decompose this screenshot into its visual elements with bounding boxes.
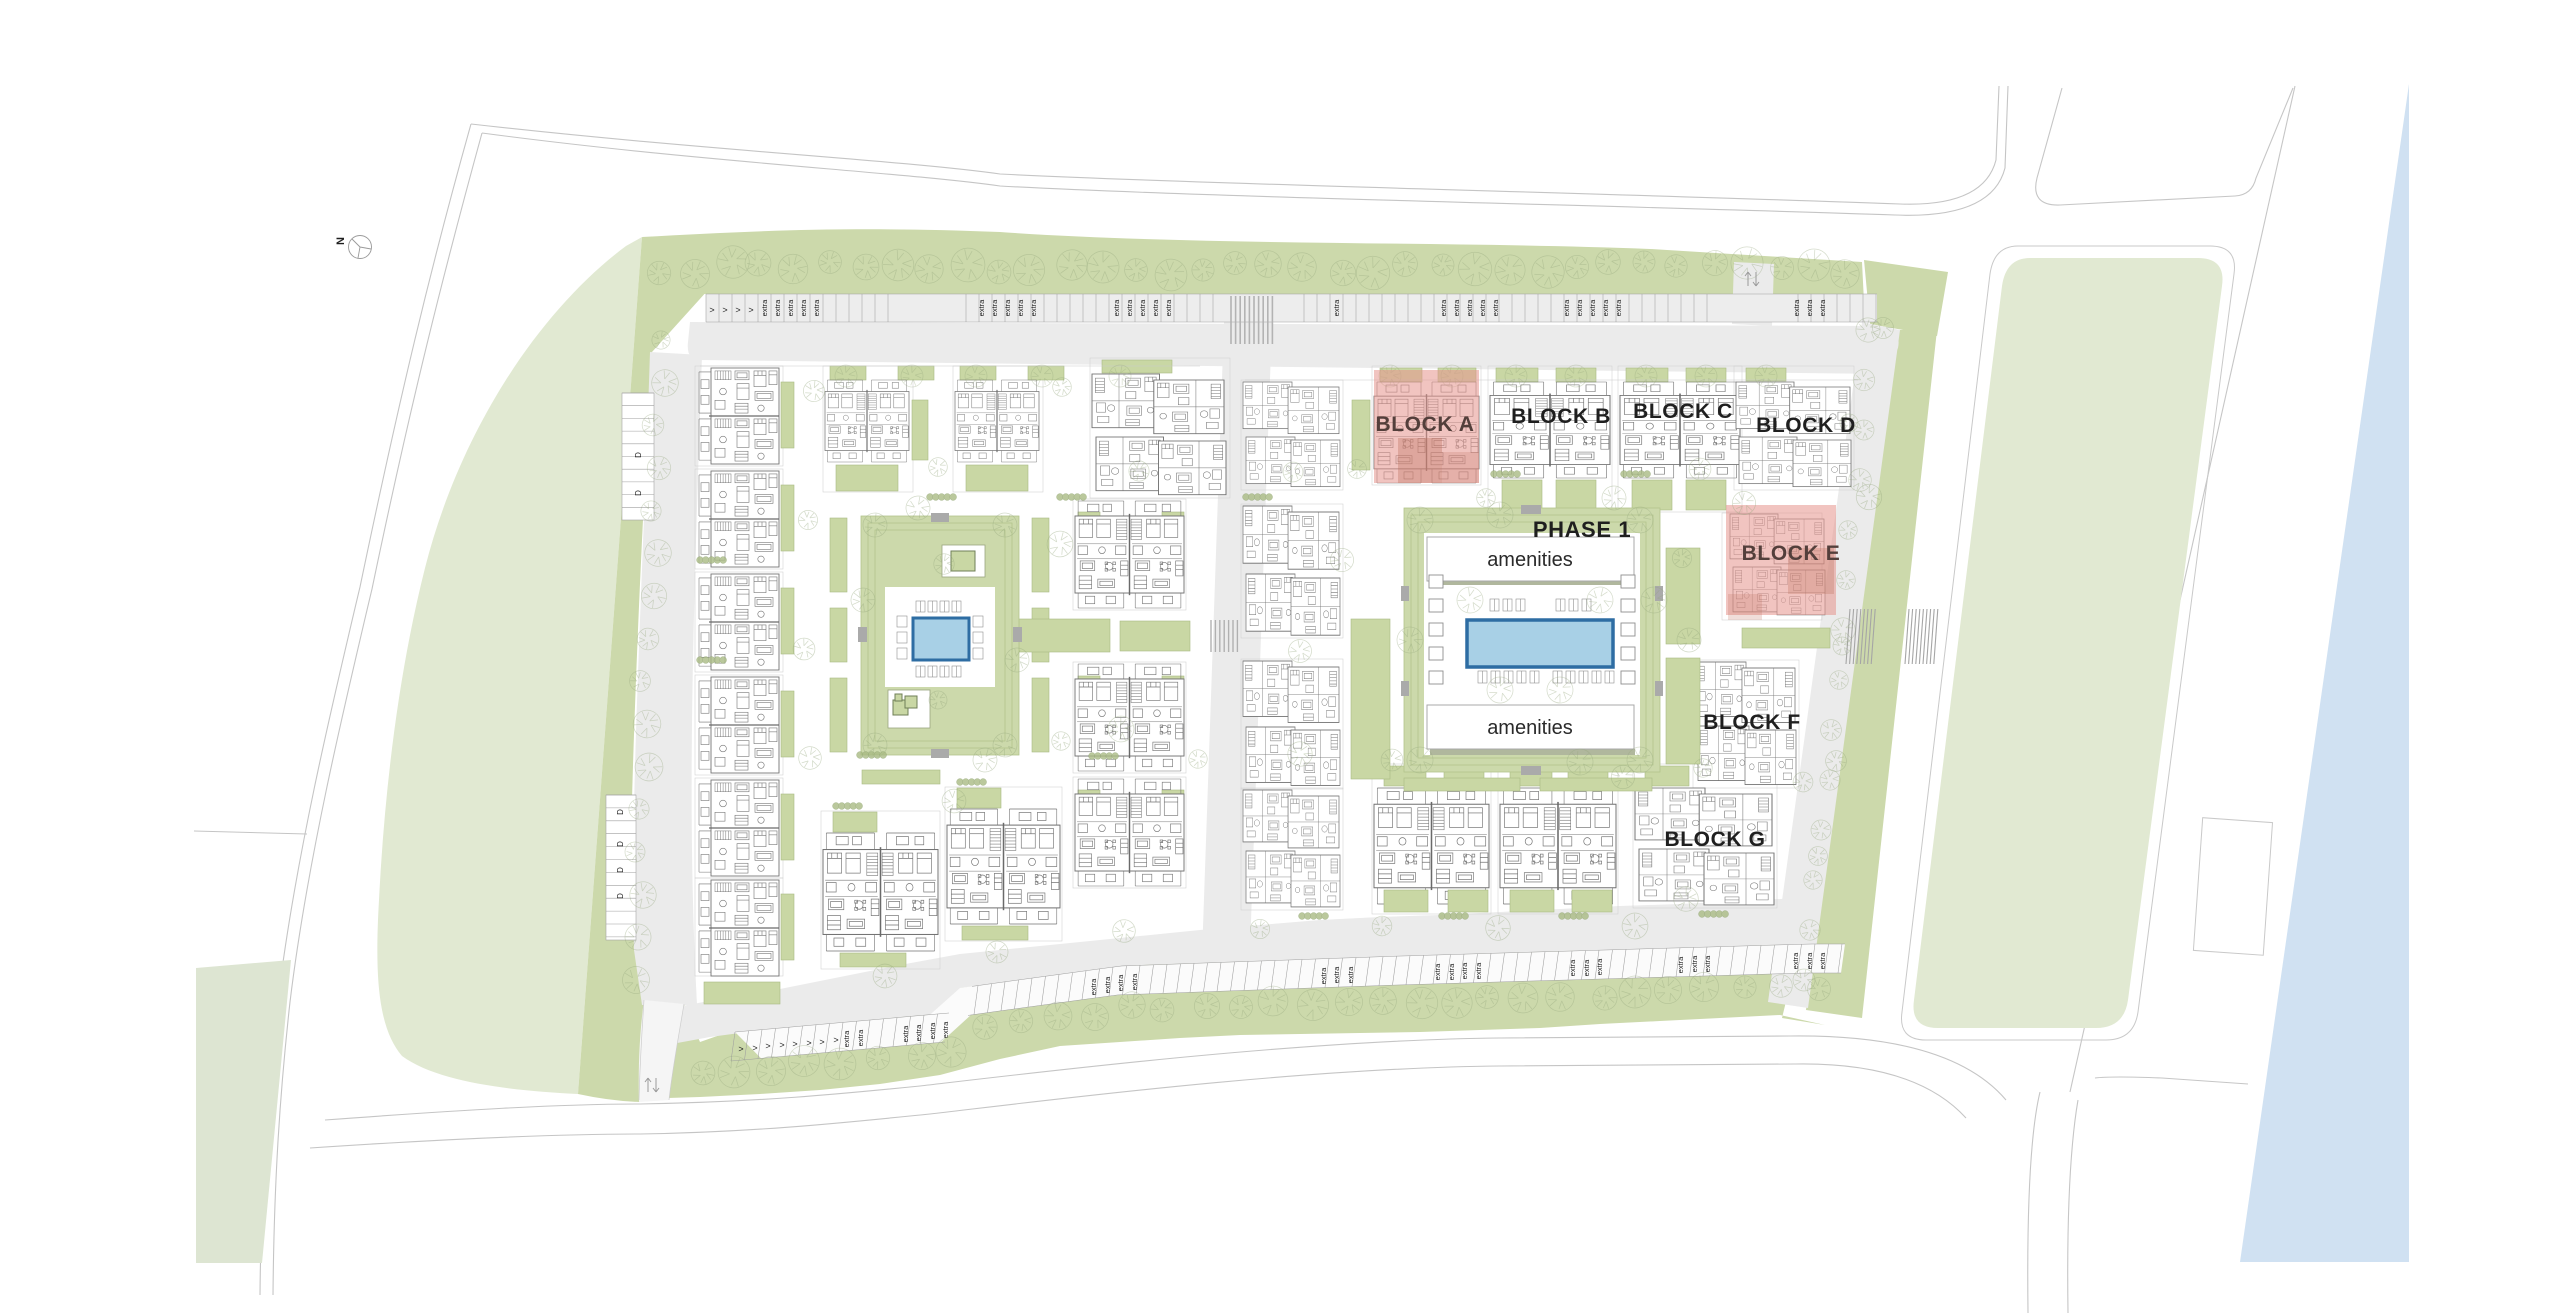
svg-text:extra: extra bbox=[1447, 963, 1456, 981]
svg-text:extra: extra bbox=[990, 299, 999, 317]
svg-text:>: > bbox=[779, 1040, 784, 1050]
svg-text:D: D bbox=[616, 867, 625, 873]
svg-text:extra: extra bbox=[977, 299, 986, 317]
svg-text:D: D bbox=[634, 452, 643, 458]
svg-text:BLOCK B: BLOCK B bbox=[1511, 405, 1611, 428]
svg-text:extra: extra bbox=[799, 299, 808, 317]
svg-text:extra: extra bbox=[1125, 299, 1134, 317]
svg-text:BLOCK G: BLOCK G bbox=[1664, 828, 1765, 851]
svg-text:>: > bbox=[765, 1041, 770, 1051]
svg-text:extra: extra bbox=[1452, 299, 1461, 317]
svg-text:extra: extra bbox=[941, 1021, 950, 1039]
svg-text:extra: extra bbox=[1332, 966, 1341, 984]
svg-text:extra: extra bbox=[1614, 299, 1623, 317]
svg-text:extra: extra bbox=[1805, 952, 1814, 970]
svg-text:D: D bbox=[634, 490, 643, 496]
svg-text:extra: extra bbox=[1791, 952, 1800, 970]
svg-text:extra: extra bbox=[812, 299, 821, 317]
svg-text:D: D bbox=[616, 809, 625, 815]
svg-text:extra: extra bbox=[1818, 299, 1827, 317]
svg-text:extra: extra bbox=[1112, 299, 1121, 317]
svg-text:extra: extra bbox=[1595, 958, 1604, 976]
svg-text:extra: extra bbox=[786, 299, 795, 317]
svg-text:extra: extra bbox=[1562, 299, 1571, 317]
svg-text:>: > bbox=[833, 1035, 838, 1045]
svg-text:>: > bbox=[748, 305, 753, 315]
svg-text:extra: extra bbox=[1588, 299, 1597, 317]
svg-text:extra: extra bbox=[1703, 955, 1712, 973]
svg-text:extra: extra bbox=[856, 1029, 865, 1047]
svg-text:BLOCK C: BLOCK C bbox=[1633, 400, 1733, 423]
svg-text:extra: extra bbox=[1676, 956, 1685, 974]
svg-text:amenities: amenities bbox=[1487, 717, 1573, 739]
svg-text:extra: extra bbox=[1433, 963, 1442, 981]
svg-text:BLOCK D: BLOCK D bbox=[1756, 414, 1856, 437]
svg-text:D: D bbox=[616, 893, 625, 899]
svg-text:extra: extra bbox=[1332, 299, 1341, 317]
svg-text:extra: extra bbox=[1690, 955, 1699, 973]
svg-text:extra: extra bbox=[1474, 962, 1483, 980]
svg-text:extra: extra bbox=[1346, 966, 1355, 984]
svg-text:extra: extra bbox=[842, 1030, 851, 1048]
svg-text:extra: extra bbox=[1805, 299, 1814, 317]
svg-text:>: > bbox=[735, 305, 740, 315]
svg-text:extra: extra bbox=[1582, 959, 1591, 977]
svg-text:extra: extra bbox=[1792, 299, 1801, 317]
svg-text:extra: extra bbox=[1460, 962, 1469, 980]
svg-text:N: N bbox=[335, 237, 347, 245]
svg-text:extra: extra bbox=[1491, 299, 1500, 317]
svg-text:BLOCK E: BLOCK E bbox=[1742, 542, 1841, 565]
svg-text:extra: extra bbox=[1003, 299, 1012, 317]
svg-text:extra: extra bbox=[901, 1025, 910, 1043]
svg-text:D: D bbox=[616, 841, 625, 847]
svg-text:extra: extra bbox=[1116, 974, 1125, 992]
svg-text:>: > bbox=[722, 305, 727, 315]
svg-text:extra: extra bbox=[1465, 299, 1474, 317]
svg-text:extra: extra bbox=[1089, 978, 1098, 996]
svg-text:extra: extra bbox=[1164, 299, 1173, 317]
svg-text:extra: extra bbox=[1319, 967, 1328, 985]
svg-text:extra: extra bbox=[1601, 299, 1610, 317]
svg-text:amenities: amenities bbox=[1487, 549, 1573, 571]
svg-text:extra: extra bbox=[1818, 952, 1827, 970]
svg-text:BLOCK A: BLOCK A bbox=[1375, 413, 1474, 436]
svg-text:extra: extra bbox=[1439, 299, 1448, 317]
svg-text:extra: extra bbox=[1016, 299, 1025, 317]
svg-text:extra: extra bbox=[1029, 299, 1038, 317]
svg-text:extra: extra bbox=[760, 299, 769, 317]
svg-text:BLOCK F: BLOCK F bbox=[1703, 711, 1801, 734]
svg-text:extra: extra bbox=[1151, 299, 1160, 317]
svg-text:>: > bbox=[709, 305, 714, 315]
svg-text:>: > bbox=[738, 1044, 743, 1054]
svg-text:extra: extra bbox=[1478, 299, 1487, 317]
svg-text:>: > bbox=[752, 1043, 757, 1053]
svg-text:extra: extra bbox=[914, 1024, 923, 1042]
svg-text:extra: extra bbox=[1130, 973, 1139, 991]
svg-text:extra: extra bbox=[1103, 976, 1112, 994]
svg-text:extra: extra bbox=[1568, 959, 1577, 977]
svg-text:extra: extra bbox=[1575, 299, 1584, 317]
svg-text:extra: extra bbox=[773, 299, 782, 317]
svg-text:>: > bbox=[819, 1037, 824, 1047]
svg-text:PHASE 1: PHASE 1 bbox=[1533, 517, 1631, 542]
svg-text:extra: extra bbox=[1138, 299, 1147, 317]
svg-text:extra: extra bbox=[928, 1022, 937, 1040]
